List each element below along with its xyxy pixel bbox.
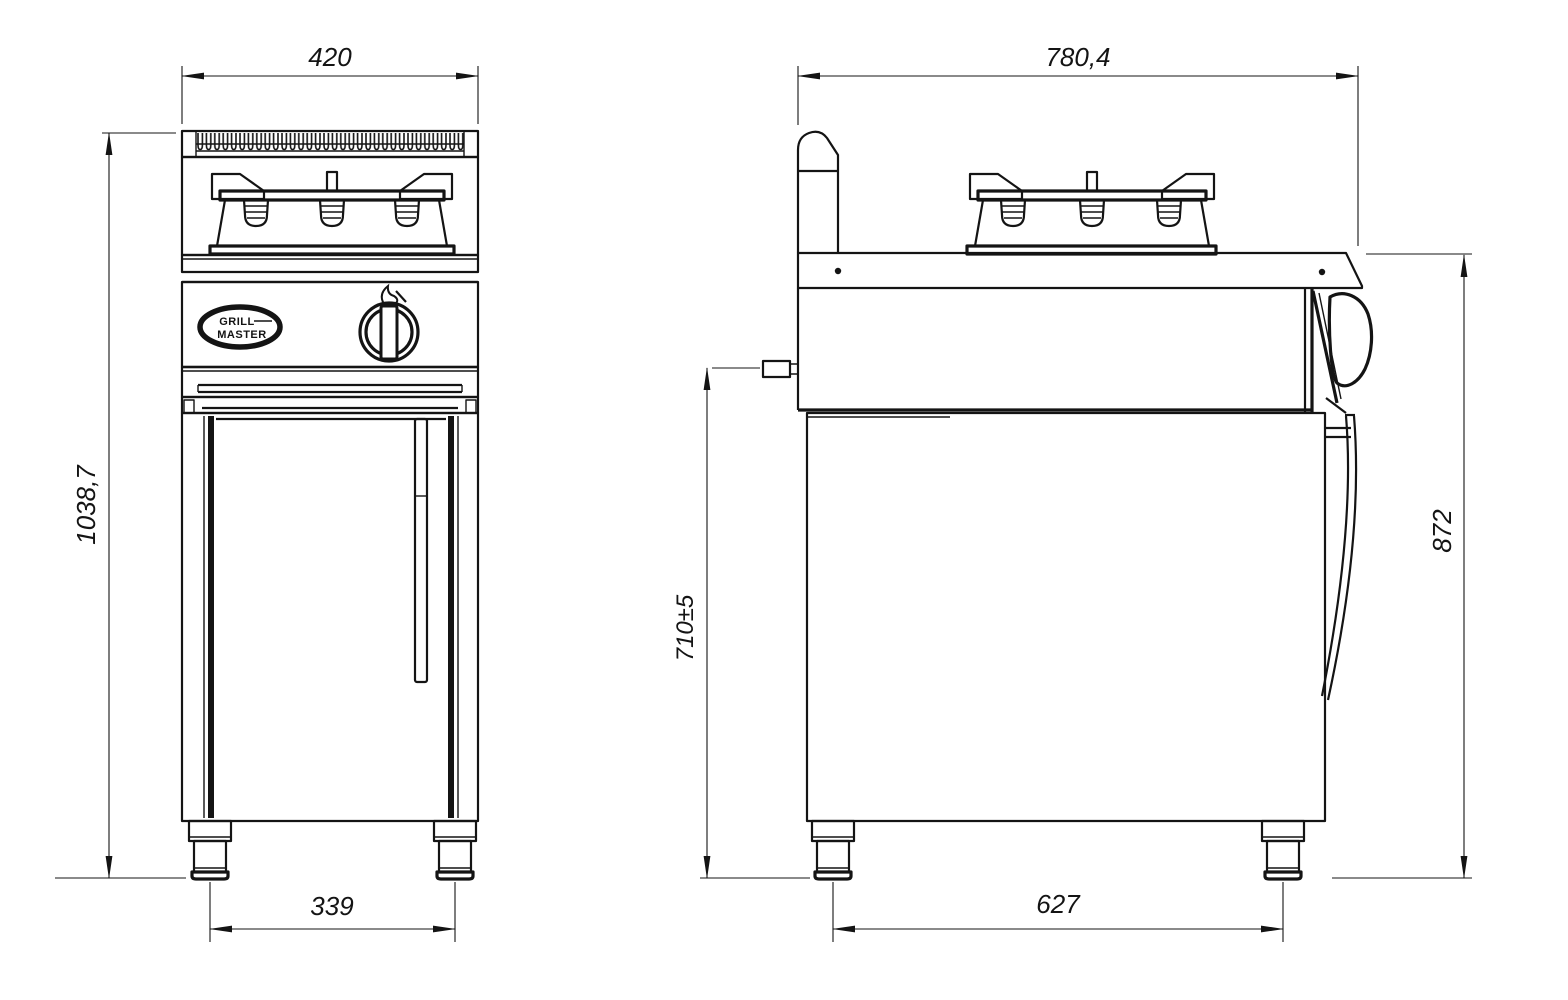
burner-base-plate (210, 246, 454, 254)
thermocouple-pin (1087, 172, 1097, 191)
door-handle[interactable] (415, 419, 427, 682)
dim-overall-depth-label: 780,4 (1045, 42, 1110, 72)
legs-front (189, 821, 476, 879)
worktop (798, 253, 1362, 288)
backsplash (798, 132, 838, 253)
thermocouple-pin (327, 172, 337, 191)
gas-inlet (763, 361, 798, 377)
lower-bands (182, 367, 478, 413)
screw-icon (1319, 269, 1325, 275)
dim-overall-width-label: 420 (308, 42, 352, 72)
drawing-canvas: GRILL MASTER (0, 0, 1568, 1000)
dim-leg-span-front-label: 339 (310, 891, 353, 921)
dim-leg-span-side-label: 627 (1036, 889, 1081, 919)
logo-line1: GRILL (219, 316, 255, 328)
knob-side-profile (1313, 291, 1372, 413)
burner (210, 172, 454, 254)
dim-gas-inlet-height-label: 710±5 (672, 594, 699, 661)
flame-icon (382, 286, 398, 304)
side-view (763, 132, 1372, 879)
burner-prongs (244, 200, 419, 226)
side-dimensions: 780,4 710±5 872 627 (672, 42, 1472, 942)
burner-side (967, 172, 1216, 254)
burner-prongs (1001, 200, 1181, 226)
cabinet-side (807, 413, 1356, 821)
front-view: GRILL MASTER (182, 131, 478, 879)
knob-handle (381, 306, 397, 359)
upper-body (763, 288, 1372, 413)
mid-bands (182, 255, 478, 282)
dim-worktop-height-label: 872 (1427, 509, 1457, 553)
burner-base-plate (967, 246, 1216, 254)
cabinet (182, 413, 478, 821)
legs-side (812, 821, 1304, 879)
grate-bar (978, 191, 1206, 200)
screw-icon (835, 268, 841, 274)
control-panel: GRILL MASTER (182, 282, 478, 367)
burner-knob[interactable] (360, 286, 418, 361)
burner-grate (182, 131, 478, 157)
cooktop (182, 157, 478, 255)
dim-overall-height-label: 1038,7 (71, 464, 101, 545)
adjustable-foot (434, 821, 476, 879)
brand-logo: GRILL MASTER (200, 307, 280, 347)
adjustable-foot (189, 821, 231, 879)
technical-drawing: GRILL MASTER (0, 0, 1568, 1000)
door-handle-side[interactable] (1322, 415, 1356, 700)
adjustable-foot (1262, 821, 1304, 879)
grate-bar (220, 191, 444, 200)
adjustable-foot (812, 821, 854, 879)
grate-teeth-icon (196, 133, 464, 153)
logo-line2: MASTER (217, 329, 266, 341)
